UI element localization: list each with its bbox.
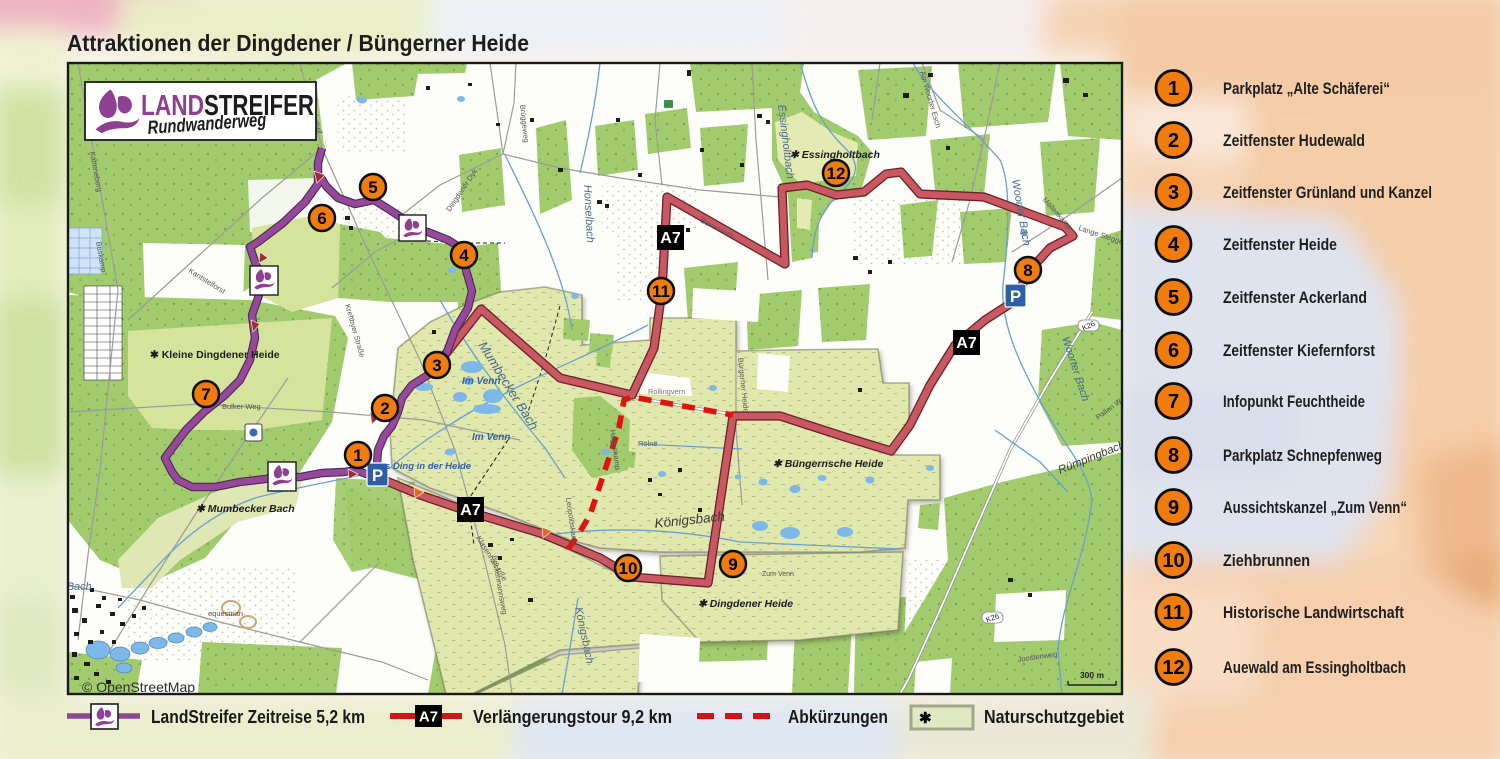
svg-text:A7: A7 — [660, 230, 681, 247]
svg-text:300 m: 300 m — [1080, 670, 1105, 680]
svg-text:Historische Landwirtschaft: Historische Landwirtschaft — [1223, 604, 1404, 622]
svg-text:A7: A7 — [956, 335, 977, 352]
svg-text:3: 3 — [1168, 182, 1179, 204]
svg-text:8: 8 — [1023, 261, 1032, 280]
svg-text:Zeitfenster Heide: Zeitfenster Heide — [1223, 236, 1337, 254]
svg-text:4: 4 — [459, 246, 469, 265]
svg-text:✱: ✱ — [919, 710, 932, 727]
svg-text:10: 10 — [1162, 550, 1184, 572]
svg-text:1: 1 — [1168, 78, 1179, 100]
svg-text:✱ Kleine Dingdener Heide: ✱ Kleine Dingdener Heide — [150, 349, 280, 361]
svg-text:Attraktionen der Dingdener / B: Attraktionen der Dingdener / Büngerner H… — [67, 30, 529, 56]
svg-text:5: 5 — [368, 178, 377, 197]
svg-text:6: 6 — [317, 209, 326, 228]
svg-text:11: 11 — [652, 282, 670, 301]
svg-text:9: 9 — [728, 555, 737, 574]
svg-text:✱ Mumbecker Bach: ✱ Mumbecker Bach — [196, 503, 295, 515]
svg-text:Zum Venn: Zum Venn — [762, 571, 794, 578]
svg-text:A7: A7 — [419, 709, 438, 726]
svg-text:Zeitfenster Grünland und Kanze: Zeitfenster Grünland und Kanzel — [1223, 184, 1432, 202]
svg-text:4: 4 — [1168, 234, 1180, 256]
svg-text:11: 11 — [1163, 602, 1184, 624]
svg-text:Abkürzungen: Abkürzungen — [788, 706, 888, 727]
svg-text:Zeitfenster Ackerland: Zeitfenster Ackerland — [1223, 289, 1367, 307]
svg-text:Aussichtskanzel „Zum Venn“: Aussichtskanzel „Zum Venn“ — [1223, 499, 1407, 517]
svg-text:✱ Essingholtbach: ✱ Essingholtbach — [790, 149, 880, 161]
svg-text:s Ding in der Heide: s Ding in der Heide — [385, 461, 472, 472]
svg-text:12: 12 — [1162, 657, 1184, 679]
svg-text:LandStreifer Zeitreise 5,2 km: LandStreifer Zeitreise 5,2 km — [151, 706, 365, 727]
svg-text:3: 3 — [432, 356, 441, 375]
svg-text:equestrian: equestrian — [208, 609, 243, 618]
svg-text:A7: A7 — [460, 502, 481, 519]
svg-text:✱ Büngernsche Heide: ✱ Büngernsche Heide — [773, 458, 883, 470]
svg-text:2: 2 — [380, 399, 389, 418]
svg-text:7: 7 — [201, 385, 210, 404]
svg-text:1: 1 — [353, 446, 362, 465]
svg-text:2: 2 — [1168, 130, 1179, 152]
svg-text:Infopunkt Feuchtheide: Infopunkt Feuchtheide — [1223, 393, 1365, 411]
svg-text:7: 7 — [1168, 391, 1179, 413]
svg-text:Rölne: Rölne — [638, 439, 658, 448]
svg-text:Zeitfenster Kiefernforst: Zeitfenster Kiefernforst — [1223, 342, 1375, 360]
svg-text:✱ Dingdener Heide: ✱ Dingdener Heide — [698, 598, 793, 610]
svg-text:Im Venn: Im Venn — [462, 376, 501, 387]
svg-text:9: 9 — [1168, 497, 1179, 519]
svg-text:12: 12 — [827, 164, 846, 183]
svg-text:Zeitfenster Hudewald: Zeitfenster Hudewald — [1223, 132, 1365, 150]
svg-text:Rollingvern: Rollingvern — [648, 387, 686, 396]
svg-text:10: 10 — [619, 559, 638, 578]
svg-text:Naturschutzgebiet: Naturschutzgebiet — [984, 706, 1124, 727]
svg-text:Bulker Weg: Bulker Weg — [222, 402, 261, 411]
svg-text:Parkplatz Schnepfenweg: Parkplatz Schnepfenweg — [1223, 447, 1382, 465]
svg-text:Parkplatz „Alte Schäferei“: Parkplatz „Alte Schäferei“ — [1223, 80, 1390, 98]
svg-text:Auewald am Essingholtbach: Auewald am Essingholtbach — [1223, 659, 1406, 677]
svg-text:Ziehbrunnen: Ziehbrunnen — [1223, 552, 1310, 570]
svg-text:P: P — [372, 466, 383, 485]
svg-text:8: 8 — [1168, 445, 1179, 467]
svg-text:6: 6 — [1168, 340, 1179, 362]
svg-text:© OpenStreetMap: © OpenStreetMap — [82, 679, 195, 695]
svg-text:P: P — [1010, 287, 1021, 306]
svg-text:Im Venn: Im Venn — [472, 432, 511, 443]
svg-text:Verlängerungstour 9,2 km: Verlängerungstour 9,2 km — [473, 706, 672, 727]
svg-text:5: 5 — [1168, 287, 1179, 309]
